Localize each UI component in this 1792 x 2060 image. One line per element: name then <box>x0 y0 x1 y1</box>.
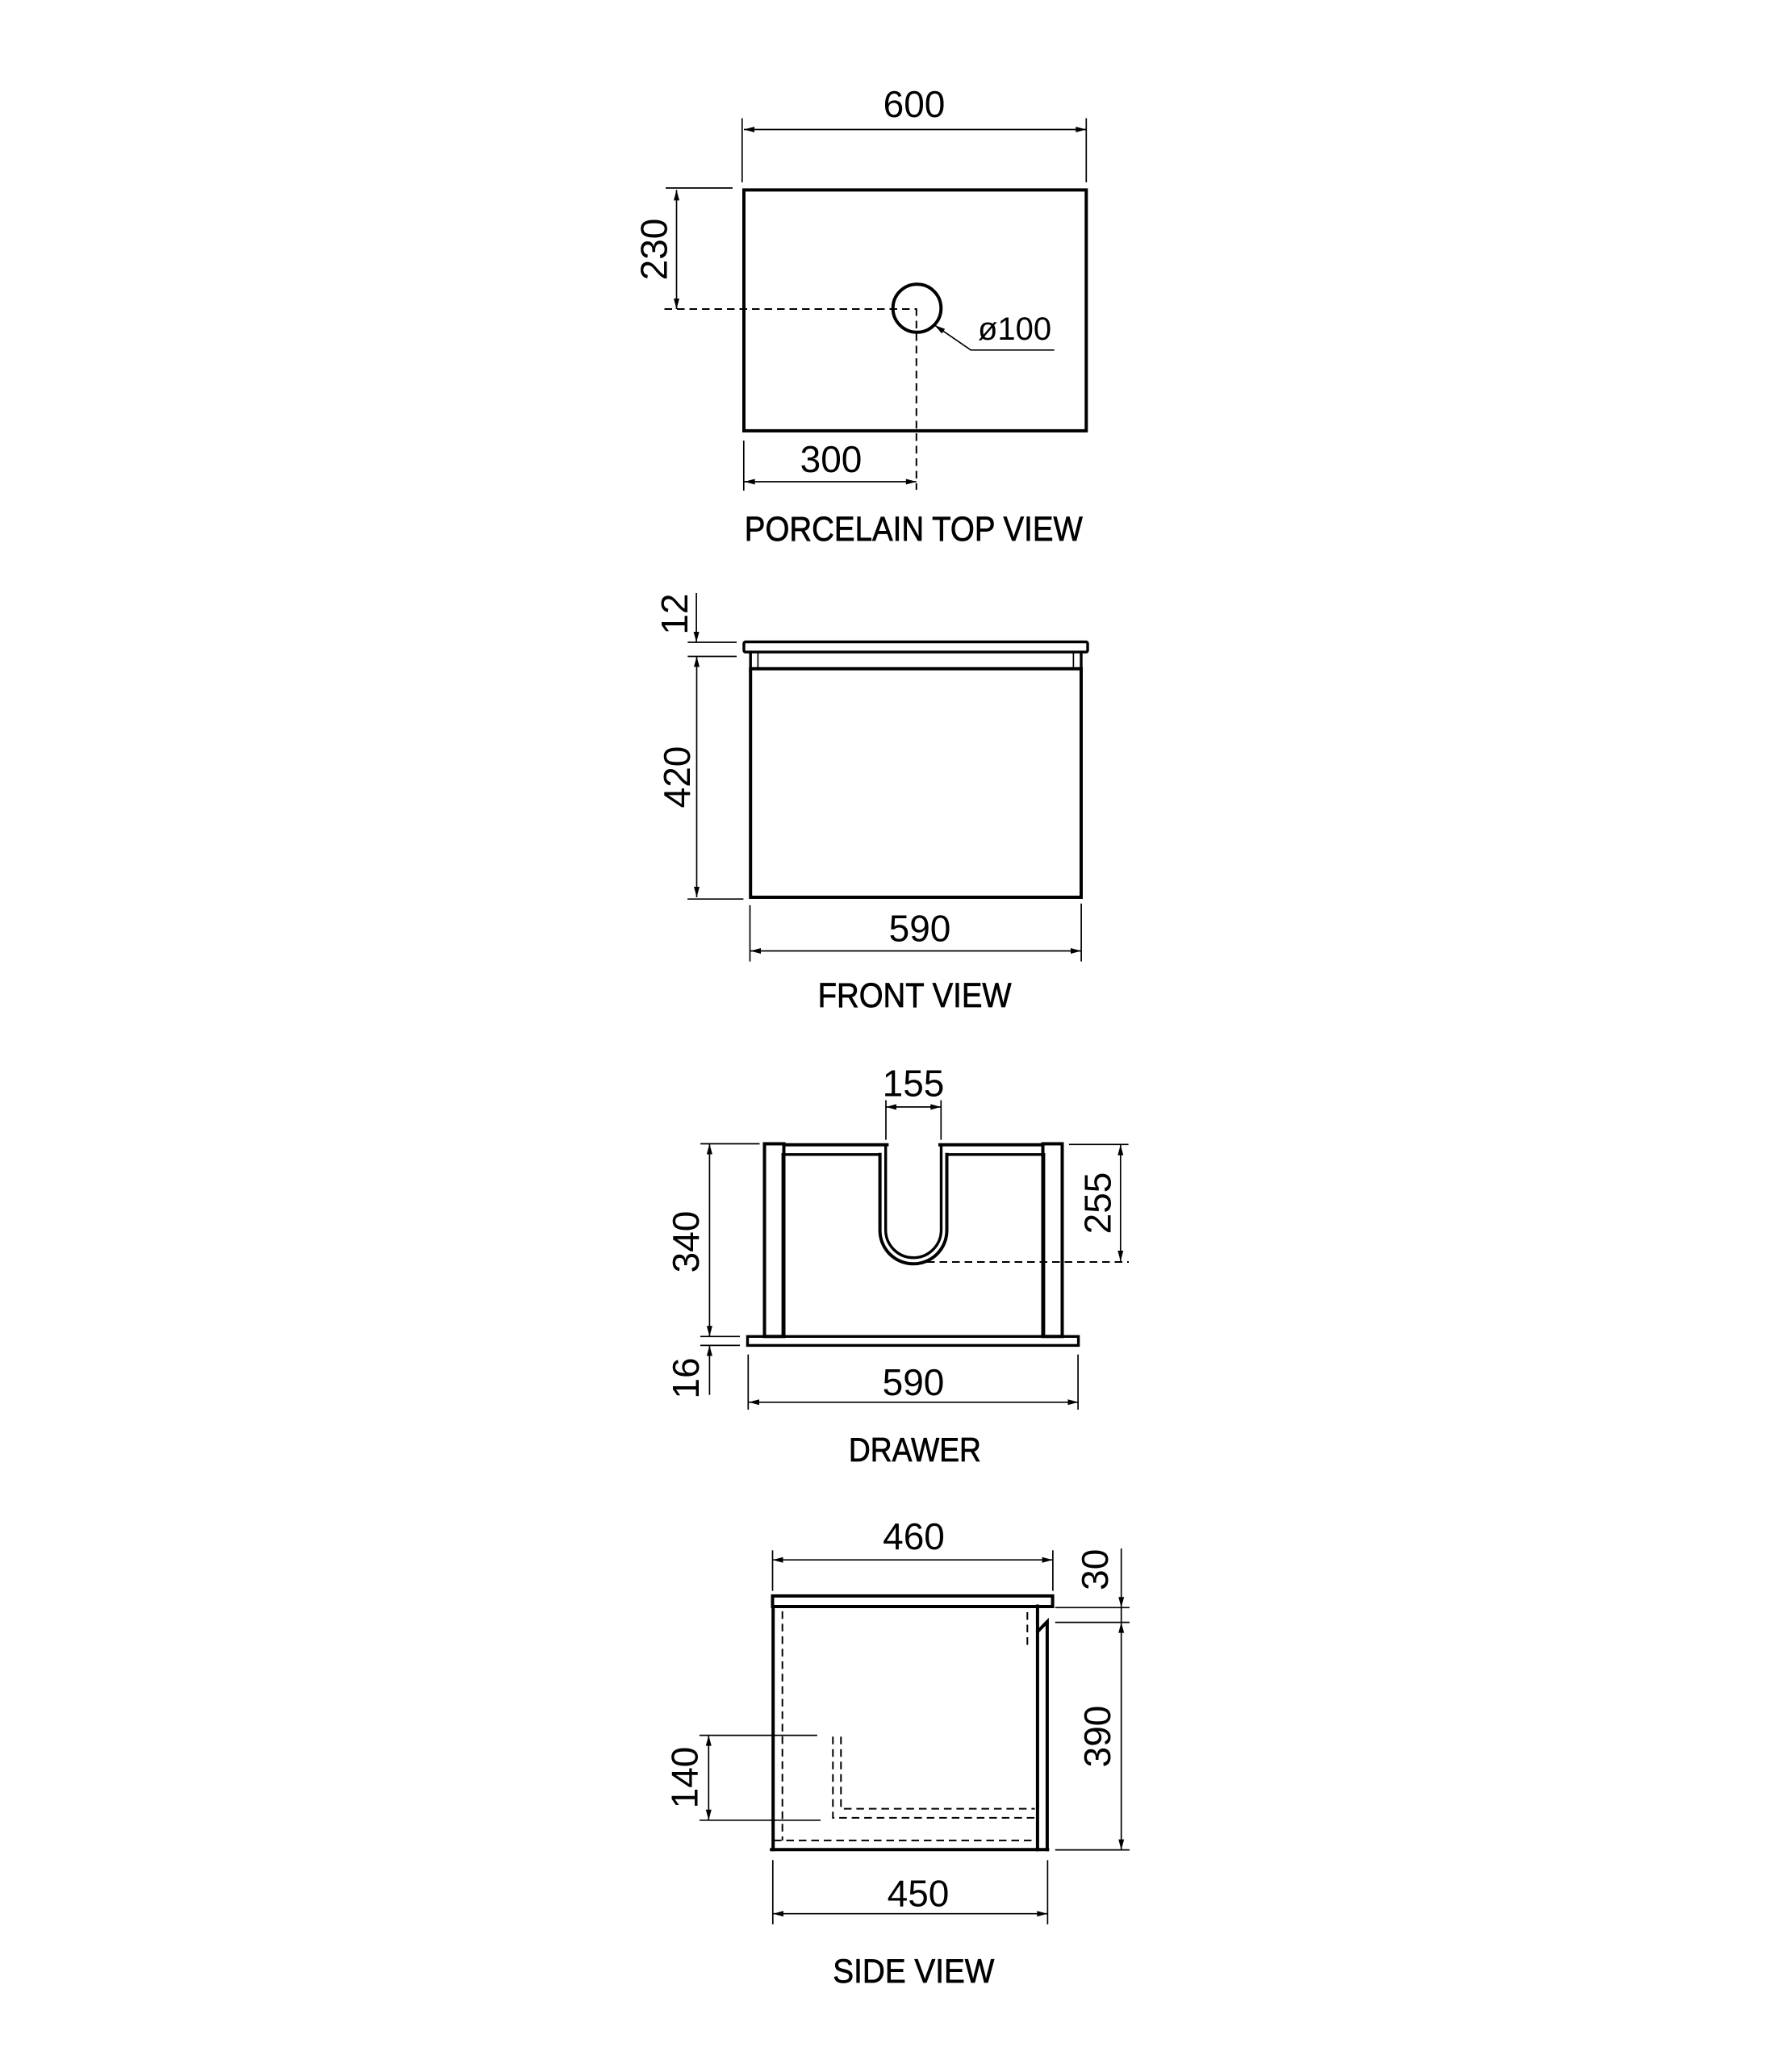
svg-text:SIDE VIEW: SIDE VIEW <box>833 1952 995 1990</box>
svg-text:340: 340 <box>665 1211 707 1273</box>
svg-text:590: 590 <box>889 907 951 949</box>
svg-text:140: 140 <box>664 1747 706 1809</box>
svg-text:230: 230 <box>633 219 675 281</box>
svg-text:590: 590 <box>883 1361 945 1403</box>
svg-text:PORCELAIN TOP VIEW: PORCELAIN TOP VIEW <box>745 510 1083 549</box>
svg-text:255: 255 <box>1077 1172 1119 1235</box>
svg-text:155: 155 <box>883 1063 945 1105</box>
svg-text:30: 30 <box>1074 1549 1116 1590</box>
svg-text:FRONT VIEW: FRONT VIEW <box>818 976 1012 1015</box>
svg-text:600: 600 <box>883 83 946 125</box>
svg-text:460: 460 <box>883 1515 945 1557</box>
svg-text:390: 390 <box>1076 1706 1118 1768</box>
svg-text:300: 300 <box>800 438 863 480</box>
svg-text:DRAWER: DRAWER <box>849 1431 981 1469</box>
svg-text:420: 420 <box>656 746 698 809</box>
svg-text:450: 450 <box>888 1873 950 1915</box>
svg-text:ø100: ø100 <box>978 311 1051 347</box>
svg-text:16: 16 <box>665 1357 707 1398</box>
svg-text:12: 12 <box>654 593 695 634</box>
